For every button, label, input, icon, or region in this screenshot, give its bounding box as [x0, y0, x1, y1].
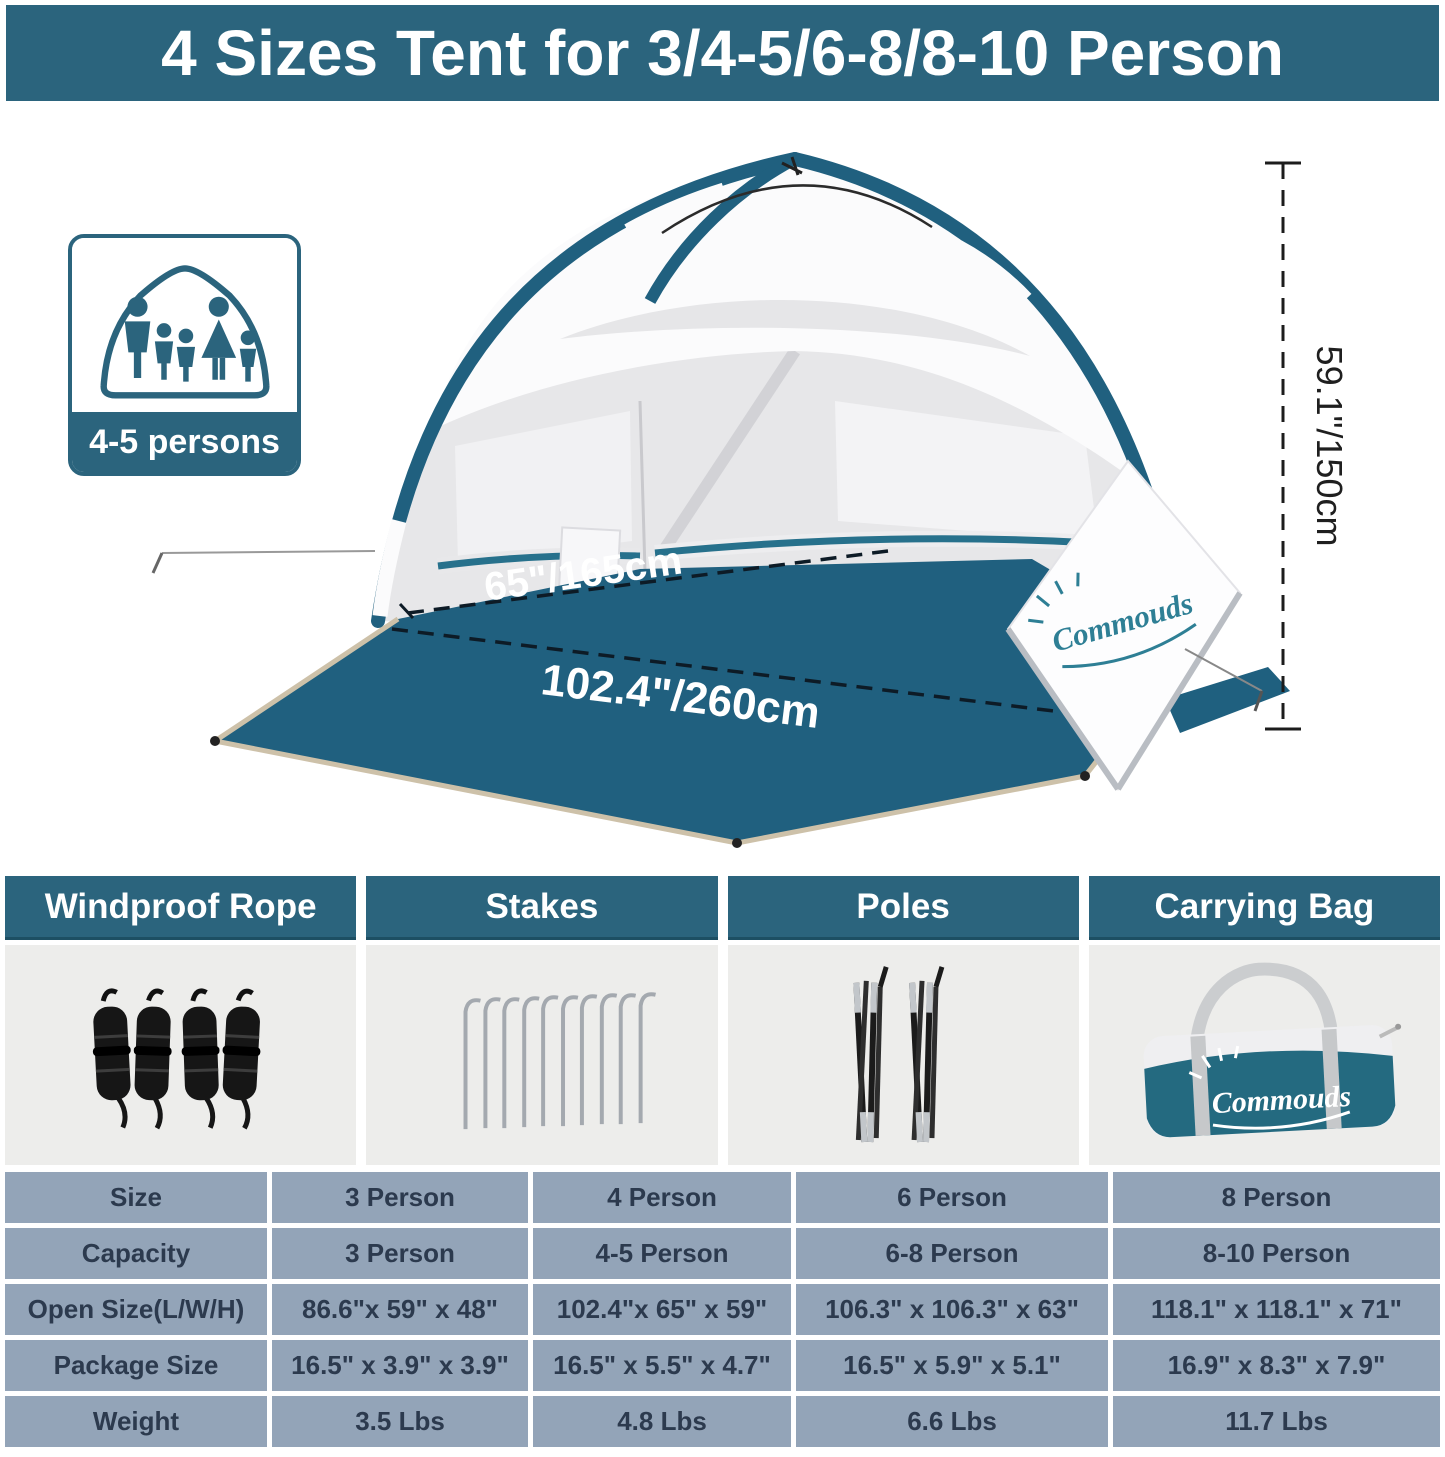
spec-row-label: Package Size: [5, 1340, 267, 1391]
poles-icon: [728, 945, 1079, 1165]
capacity-badge-label: 4-5 persons: [72, 412, 297, 472]
spec-value-cell: 8 Person: [1113, 1172, 1440, 1223]
spec-value-cell: 106.3" x 106.3" x 63": [796, 1284, 1108, 1335]
spec-row-label: Capacity: [5, 1228, 267, 1279]
spec-value-cell: 6.6 Lbs: [796, 1396, 1108, 1447]
height-dimension-label: 59.1"/150cm: [1309, 346, 1350, 547]
spec-value-cell: 6 Person: [796, 1172, 1108, 1223]
spec-row-label: Weight: [5, 1396, 267, 1447]
spec-value-cell: 16.5" x 5.9" x 5.1": [796, 1340, 1108, 1391]
spec-value-cell: 8-10 Person: [1113, 1228, 1440, 1279]
spec-value-cell: 16.5" x 3.9" x 3.9": [272, 1340, 528, 1391]
accessory-header: Windproof Rope: [5, 876, 356, 940]
accessory-stakes: Stakes: [366, 876, 717, 1165]
spec-value-cell: 16.9" x 8.3" x 7.9": [1113, 1340, 1440, 1391]
left-guy-rope: [153, 551, 375, 573]
spec-value-cell: 4-5 Person: [533, 1228, 791, 1279]
tent-illustration: 65"/165cm 102.4"/260cm: [0, 101, 1445, 875]
spec-value-cell: 86.6"x 59" x 48": [272, 1284, 528, 1335]
accessory-header: Stakes: [366, 876, 717, 940]
tent-hero-section: 65"/165cm 102.4"/260cm: [0, 101, 1445, 875]
banner-title: 4 Sizes Tent for 3/4-5/6-8/8-10 Person: [6, 5, 1439, 101]
spec-row-label: Open Size(L/W/H): [5, 1284, 267, 1335]
accessory-windproof-rope: Windproof Rope: [5, 876, 356, 1165]
spec-value-cell: 118.1" x 118.1" x 71": [1113, 1284, 1440, 1335]
carrying-bag-icon: Commouds: [1089, 945, 1440, 1165]
spec-row-label: Size: [5, 1172, 267, 1223]
accessory-poles: Poles: [728, 876, 1079, 1165]
capacity-badge: 4-5 persons: [68, 234, 301, 476]
stakes-icon: [366, 945, 717, 1165]
accessory-carrying-bag: Carrying Bag Commouds: [1089, 876, 1440, 1165]
family-tent-icon: [80, 245, 290, 405]
spec-value-cell: 4.8 Lbs: [533, 1396, 791, 1447]
spec-value-cell: 3 Person: [272, 1228, 528, 1279]
windproof-rope-icon: [5, 945, 356, 1165]
accessories-strip: Windproof Rope: [5, 876, 1440, 1163]
spec-table: Size 3 Person 4 Person 6 Person 8 Person…: [5, 1172, 1440, 1447]
spec-value-cell: 3 Person: [272, 1172, 528, 1223]
product-infographic: 4 Sizes Tent for 3/4-5/6-8/8-10 Person: [0, 0, 1445, 1457]
accessory-header: Poles: [728, 876, 1079, 940]
spec-value-cell: 3.5 Lbs: [272, 1396, 528, 1447]
spec-value-cell: 4 Person: [533, 1172, 791, 1223]
spec-value-cell: 16.5" x 5.5" x 4.7": [533, 1340, 791, 1391]
accessory-header: Carrying Bag: [1089, 876, 1440, 940]
spec-value-cell: 102.4"x 65" x 59": [533, 1284, 791, 1335]
spec-value-cell: 6-8 Person: [796, 1228, 1108, 1279]
spec-value-cell: 11.7 Lbs: [1113, 1396, 1440, 1447]
height-dimension: 59.1"/150cm: [1265, 163, 1350, 729]
